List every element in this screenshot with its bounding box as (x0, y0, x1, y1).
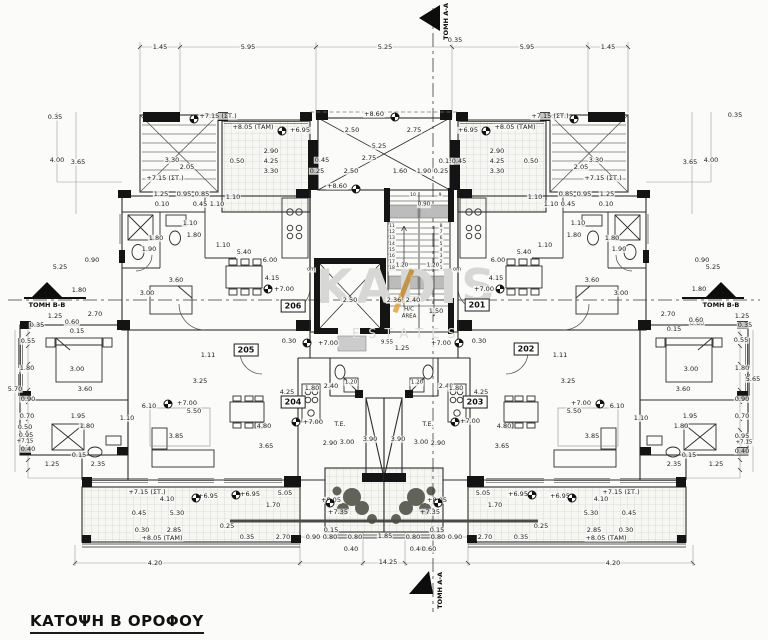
dimension-label: 6 (439, 237, 444, 242)
dimension-label: +7.15 (ΣΤ.) (530, 113, 569, 120)
dimension-label: 0.40 (343, 546, 359, 553)
dimension-label: +8.60 (326, 183, 348, 190)
level-marker-icon (528, 491, 537, 500)
dimension-label: 0.30 (281, 338, 297, 345)
dimension-label: +7.15 (ΣΤ.) (145, 175, 184, 182)
dimension-label: 3.00 (339, 439, 355, 446)
dimension-label: 2.05 (573, 164, 589, 171)
dimension-label: 1.80 (71, 287, 87, 294)
section-label-a-a-top: ΤΟΜΗ Α-Α (443, 3, 450, 40)
dimension-label: AREA (401, 314, 418, 320)
dimension-label: 3.65 (70, 159, 86, 166)
dimension-label: 1.95 (682, 413, 698, 420)
dimension-label: 4.25 (489, 158, 505, 165)
dimension-label: +7.15 (ΣΤ.) (583, 175, 622, 182)
dimension-label: 1.10 (543, 201, 559, 208)
level-marker-icon (455, 339, 464, 348)
dimension-label: 2.70 (87, 311, 103, 318)
dimension-label: 0.60 (64, 319, 80, 326)
level-marker-icon (568, 494, 577, 503)
dimension-label: 4.10 (159, 496, 175, 503)
dimension-label: 1.80 (691, 286, 707, 293)
dimension-label: 1.10 (225, 194, 241, 201)
dimension-label: 13 (388, 237, 396, 242)
dimension-label: 4.80 (256, 423, 272, 430)
level-marker-icon (292, 418, 301, 427)
dimension-label: 1.25 (394, 345, 410, 352)
dimension-label: 0.90 (20, 396, 36, 403)
dimension-label: 5.25 (371, 143, 387, 150)
dimension-label: +7.00 (176, 400, 198, 407)
dimension-label: +6.95 (457, 127, 479, 134)
dimension-label: 0.15 (323, 527, 339, 534)
dimension-label: +7.35 (419, 509, 441, 516)
section-label-a-a-bottom: ΤΟΜΗ Α-Α (437, 572, 444, 609)
dimension-label: 1.10 (633, 415, 649, 422)
dimension-label: 1.80 (148, 235, 164, 242)
level-marker-icon (451, 418, 460, 427)
dimension-label: 5.50 (566, 408, 582, 415)
dimension-label: 4.20 (605, 560, 621, 567)
dimension-label: 2.85 (586, 527, 602, 534)
dimension-label: 2.05 (179, 164, 195, 171)
dimension-label: 9.55 (380, 340, 394, 346)
dimension-label: 0.85 (194, 191, 210, 198)
dimension-label: +8.05 (ΤΑΜ) (584, 535, 627, 542)
dimension-label: 1.80 (79, 423, 95, 430)
dimension-label: 0.40 (20, 446, 36, 453)
dimension-label: 3.30 (489, 168, 505, 175)
dimension-label: 3.65 (494, 443, 510, 450)
dimension-label: 0.80 (322, 534, 338, 541)
dimension-label: 1.10 (209, 201, 225, 208)
dimension-label: 1.10 (119, 415, 135, 422)
dimension-label: 0.25 (433, 168, 449, 175)
dimension-label: 1.45 (600, 44, 616, 51)
dimension-label: 5.70 (7, 386, 23, 393)
level-marker-icon (326, 499, 335, 508)
dimension-label: 0.30 (471, 338, 487, 345)
dimension-label: 0.35 (737, 322, 753, 329)
dimension-label: 5.25 (377, 44, 393, 51)
dimension-label: 5 (439, 243, 444, 248)
level-marker-icon (496, 285, 505, 294)
level-marker-icon (192, 494, 201, 503)
dimension-label: 0.35 (513, 534, 529, 541)
dimension-label: 4 (439, 249, 444, 254)
dimension-label: 0.80 (347, 534, 363, 541)
dimension-label: 1.11 (200, 352, 216, 359)
level-marker-icon (482, 127, 491, 136)
dimension-label: 0.95 (176, 191, 192, 198)
dimension-label: 2.70 (477, 534, 493, 541)
dimension-label: 3.85 (584, 433, 600, 440)
apartment-number-tag: 201 (465, 299, 490, 312)
dimension-label: +6.95 (239, 491, 261, 498)
dimension-label: 6.10 (141, 403, 157, 410)
dimension-label: 2.90 (430, 440, 446, 447)
level-marker-icon (190, 115, 199, 124)
dimension-label: 4.00 (49, 157, 65, 164)
dimension-label: 10 (409, 194, 417, 199)
dimension-label: 4.25 (279, 389, 295, 396)
dimension-label: +8.05 (ΤΑΜ) (231, 124, 274, 131)
section-label-b-b-right: ΤΟΜΗ Β-Β (703, 302, 740, 309)
dimension-label: 0.25 (219, 523, 235, 530)
dimension-label: 0.50 (17, 424, 33, 431)
dimension-label: +7.00 (273, 286, 295, 293)
level-marker-icon (278, 127, 287, 136)
dimension-label: 0.10 (154, 201, 170, 208)
dimension-label: 0.30 (134, 527, 150, 534)
dimension-label: 0.45 (560, 201, 576, 208)
dimension-label: 0.70 (19, 413, 35, 420)
dimension-label: 12 (388, 231, 396, 236)
level-marker-icon (232, 491, 241, 500)
dimension-label: 1.80 (304, 385, 320, 392)
dimension-label: 6.00 (490, 257, 506, 264)
dimension-label: 5.25 (52, 264, 68, 271)
apartment-number-tag: 202 (514, 343, 539, 356)
dimension-label: 5.95 (240, 44, 256, 51)
dimension-label: +7.00 (430, 340, 452, 347)
dimension-label: om (306, 268, 316, 273)
dimension-label: 1.20 (344, 380, 358, 386)
dimension-label: 1.90 (141, 246, 157, 253)
dimension-label: +8.05 (ΤΑΜ) (140, 535, 183, 542)
dimension-label: 0.40 (734, 448, 750, 455)
dimension-label: 1.95 (70, 413, 86, 420)
dimension-label: 1.10 (527, 194, 543, 201)
dimension-label: 3.25 (560, 378, 576, 385)
dimension-label: 0.45 (451, 158, 467, 165)
level-marker-icon (434, 499, 443, 508)
dimension-label: 4.10 (593, 496, 609, 503)
dimension-label: 0.15 (666, 326, 682, 333)
dimension-label: 2.90 (489, 148, 505, 155)
dimension-label: 5.50 (186, 408, 202, 415)
dimension-label: 3.00 (69, 366, 85, 373)
dimension-label: 0.35 (727, 112, 743, 119)
dimension-label: 3 (439, 255, 444, 260)
dimension-label: 3.60 (77, 386, 93, 393)
dimension-label: 4.15 (264, 275, 280, 282)
dimension-label: 3.00 (683, 366, 699, 373)
dimension-label: 1.70 (487, 502, 503, 509)
dimension-label: 1.90 (416, 168, 432, 175)
dimension-label: 0.15 (681, 452, 697, 459)
dimension-label: 9 (438, 194, 443, 199)
dimension-label: 1.20 (426, 263, 440, 269)
dimension-label: 4.80 (496, 423, 512, 430)
dimension-label: 1.90 (611, 246, 627, 253)
level-marker-icon (164, 400, 173, 409)
dimension-label: 4.00 (703, 157, 719, 164)
dimension-label: 0.95 (576, 191, 592, 198)
dimension-label: 5.05 (475, 490, 491, 497)
drawing-title: ΚΑΤΟΨΗ Β ΟΡΟΦΟΥ (30, 612, 204, 634)
dimension-label: 0.90 (734, 396, 750, 403)
dimension-label: 0.25 (309, 168, 325, 175)
dimension-label: 2.36 (386, 297, 402, 304)
dimension-label: 1.10 (215, 242, 231, 249)
dimension-label: 3.90 (362, 436, 378, 443)
dimension-label: 3.30 (588, 157, 604, 164)
dimension-label: 3.65 (258, 443, 274, 450)
dimension-label: 3.65 (682, 159, 698, 166)
dimension-label: 1.50 (428, 308, 444, 315)
dimension-label: +7.35 (327, 509, 349, 516)
level-marker-icon (596, 400, 605, 409)
dimension-label: 3.00 (613, 290, 629, 297)
dimension-label: 1.25 (734, 313, 750, 320)
dimension-label: 1.10 (537, 242, 553, 249)
dimension-label: 1.80 (448, 385, 464, 392)
dimension-label: 1.80 (186, 232, 202, 239)
dimension-label: 1.80 (734, 365, 750, 372)
dimension-label: 0.70 (734, 413, 750, 420)
dimension-label: +7.00 (473, 286, 495, 293)
dimension-label: 0.25 (533, 523, 549, 530)
dimension-label: H/C (403, 307, 415, 313)
dimension-label: 5.65 (745, 376, 761, 383)
apartment-number-tag: 203 (463, 396, 488, 409)
dimension-label: 2.70 (660, 311, 676, 318)
dimension-label: 8 (439, 225, 444, 230)
dimension-label: 3.60 (168, 277, 184, 284)
dimension-label: +7.00 (317, 340, 339, 347)
dimension-label: 4.20 (147, 560, 163, 567)
dimension-label: 0.15 (69, 328, 85, 335)
dimension-label: +7.00 (459, 418, 481, 425)
dimension-label: 2.40 (323, 383, 339, 390)
dimension-label: 0.45 (621, 510, 637, 517)
level-marker-icon (264, 285, 273, 294)
dimension-label: 3.60 (584, 277, 600, 284)
dimension-label: om (452, 268, 462, 273)
dimension-label: 0.60 (421, 546, 437, 553)
dimension-label: 2.75 (406, 127, 422, 134)
dimension-label: 0.45 (192, 201, 208, 208)
dimension-label: 1.10 (182, 220, 198, 227)
dimension-label: 0.35 (29, 322, 45, 329)
dimension-label: 6.10 (609, 403, 625, 410)
dimension-label: 0.90 (447, 534, 463, 541)
dimension-label: 0.90 (84, 257, 100, 264)
dimension-label: 1.25 (708, 461, 724, 468)
dimension-label: 2.90 (322, 440, 338, 447)
section-label-b-b-left: ΤΟΜΗ Β-Β (29, 302, 66, 309)
dimension-label: +8.05 (ΤΑΜ) (493, 124, 536, 131)
dimension-label: 0.55 (733, 337, 749, 344)
dimension-label: 0.80 (430, 534, 446, 541)
annotation-layer: 1.455.955.255.951.450.350.350.354.003.65… (0, 0, 768, 640)
apartment-number-tag: 204 (281, 396, 306, 409)
dimension-label: 1.25 (47, 313, 63, 320)
dimension-label: 1.45 (152, 44, 168, 51)
dimension-label: 6.00 (262, 257, 278, 264)
dimension-label: 0.35 (239, 534, 255, 541)
floor-plan-page: { "title": {"text": "ΚΑΤΟΨΗ Β ΟΡΟΦΟΥ"}, … (0, 0, 768, 640)
dimension-label: 0.90 (305, 534, 321, 541)
dimension-label: 3.60 (675, 386, 691, 393)
dimension-label: 0.60 (688, 317, 704, 324)
dimension-label: 3.25 (192, 378, 208, 385)
dimension-label: 14 (388, 243, 396, 248)
dimension-label: 0.85 (558, 191, 574, 198)
level-marker-icon (570, 115, 579, 124)
apartment-number-tag: 205 (234, 344, 259, 357)
dimension-label: 5.40 (516, 249, 532, 256)
dimension-label: 2.40 (405, 297, 421, 304)
dimension-label: 15 (388, 249, 396, 254)
dimension-label: 0.45 (314, 157, 330, 164)
dimension-label: +8.60 (363, 111, 385, 118)
dimension-label: 4.25 (263, 158, 279, 165)
dimension-label: +7.15 (ΣΤ.) (198, 113, 237, 120)
dimension-label: 0.15 (71, 452, 87, 459)
dimension-label: 1.80 (566, 232, 582, 239)
dimension-label: 11 (388, 225, 396, 230)
level-marker-icon (303, 339, 312, 348)
dimension-label: 5.30 (583, 510, 599, 517)
dimension-label: T.E. (333, 421, 346, 428)
dimension-label: 2.35 (666, 461, 682, 468)
dimension-label: 16 (388, 255, 396, 260)
dimension-label: +6.95 (289, 127, 311, 134)
dimension-label: 2.75 (361, 155, 377, 162)
dimension-label: 3.30 (263, 168, 279, 175)
dimension-label: 0.50 (229, 158, 245, 165)
dimension-label: 5.40 (236, 249, 252, 256)
dimension-label: 1.11 (552, 352, 568, 359)
dimension-label: 5.95 (519, 44, 535, 51)
dimension-label: 0.50 (523, 158, 539, 165)
dimension-label: 3.00 (139, 290, 155, 297)
dimension-label: 1.25 (599, 191, 615, 198)
dimension-label: 0.45 (131, 510, 147, 517)
dimension-label: 1.85 (377, 533, 393, 540)
dimension-label: 0.15 (429, 527, 445, 534)
dimension-label: 3.85 (168, 433, 184, 440)
dimension-label: 14.25 (378, 559, 399, 566)
dimension-label: +7.00 (570, 400, 592, 407)
dimension-label: 2.50 (343, 168, 359, 175)
dimension-label: 1.25 (153, 191, 169, 198)
level-marker-icon (391, 113, 400, 122)
dimension-label: 5.25 (705, 264, 721, 271)
dimension-label: 2.35 (90, 461, 106, 468)
dimension-label: 2.50 (342, 297, 358, 304)
dimension-label: +6.95 (507, 491, 529, 498)
dimension-label: +7.00 (302, 419, 324, 426)
dimension-label: 0.10 (598, 201, 614, 208)
dimension-label: +7.15 (735, 440, 754, 446)
dimension-label: T.E. (421, 421, 434, 428)
dimension-label: 3.00 (413, 439, 429, 446)
dimension-label: 7 (439, 231, 444, 236)
dimension-label: 1.25 (44, 461, 60, 468)
dimension-label: 3.30 (164, 157, 180, 164)
dimension-label: 0.55 (20, 338, 36, 345)
dimension-label: 4.25 (473, 389, 489, 396)
apartment-number-tag: 206 (281, 300, 306, 313)
dimension-label: 2.90 (263, 148, 279, 155)
dimension-label: 0.30 (618, 527, 634, 534)
dimension-label: 1.70 (265, 502, 281, 509)
dimension-label: 1.80 (673, 423, 689, 430)
dimension-label: 1.20 (410, 380, 424, 386)
dimension-label: 1.60 (392, 168, 408, 175)
dimension-label: 3.90 (390, 436, 406, 443)
dimension-label: 1.80 (19, 365, 35, 372)
dimension-label: 5.30 (169, 510, 185, 517)
dimension-label: 4.15 (488, 275, 504, 282)
dimension-label: 2.70 (275, 534, 291, 541)
dimension-label: 0.90 (417, 202, 431, 208)
dimension-label: 0.35 (47, 114, 63, 121)
dimension-label: 0.80 (405, 534, 421, 541)
dimension-label: 2.50 (344, 127, 360, 134)
dimension-label: 1.20 (395, 263, 409, 269)
level-marker-icon (352, 185, 361, 194)
dimension-label: 1.10 (570, 220, 586, 227)
dimension-label: 5.05 (277, 490, 293, 497)
dimension-label: 2.85 (166, 527, 182, 534)
dimension-label: 1.80 (604, 235, 620, 242)
